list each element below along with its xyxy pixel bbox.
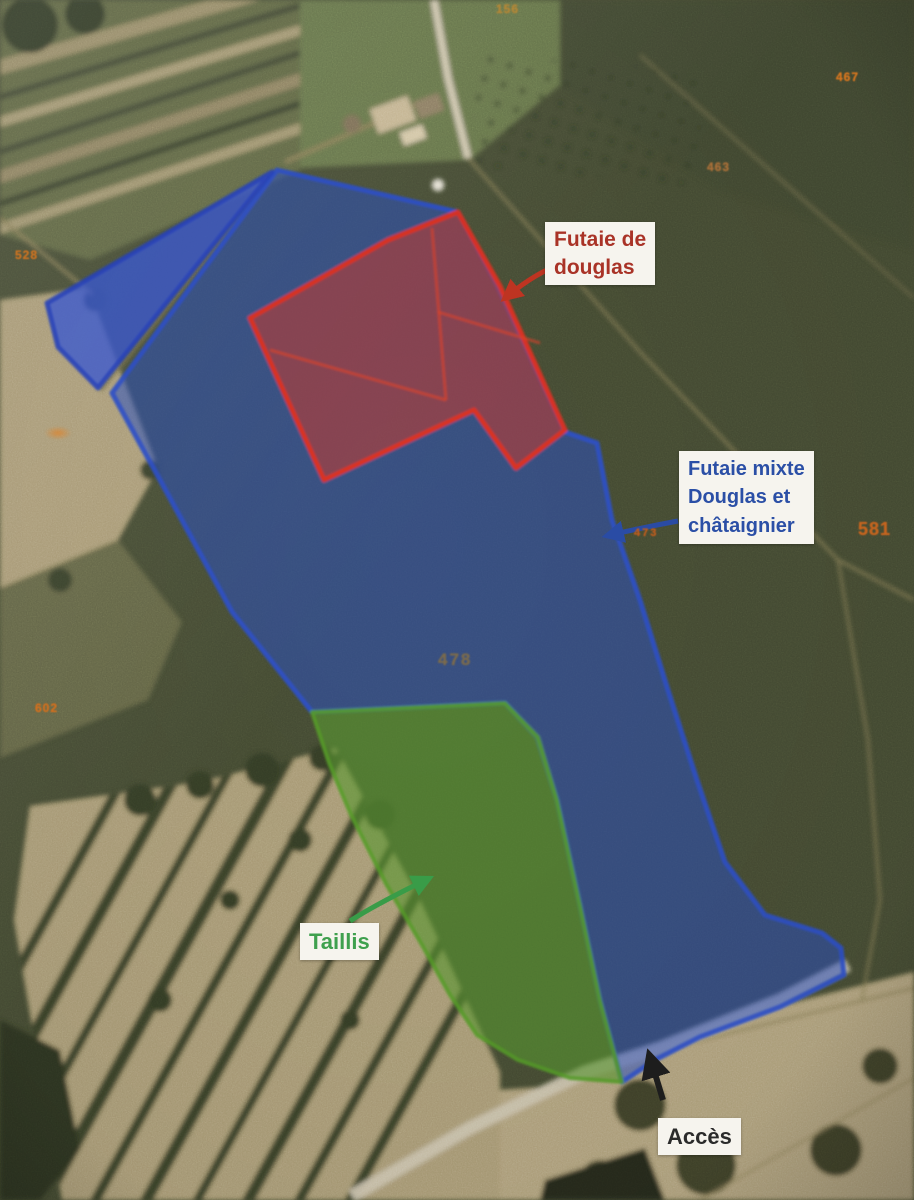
vignette (0, 0, 914, 1200)
label-line: Futaie de (554, 226, 646, 254)
label-futaie-mixte: Futaie mixte Douglas et châtaignier (679, 451, 814, 544)
label-line: Taillis (309, 927, 370, 956)
illegible-parcel-number (44, 426, 72, 440)
label-line: Douglas et (688, 483, 805, 511)
parcel-number: 473 (634, 527, 658, 539)
parcel-number: 478 (438, 650, 472, 670)
label-taillis: Taillis (300, 923, 379, 960)
label-line: douglas (554, 254, 646, 282)
label-line: Accès (667, 1122, 732, 1151)
basemap-svg (0, 0, 914, 1200)
parcel-number: 602 (35, 701, 58, 715)
label-line: châtaignier (688, 512, 805, 540)
parcel-number: 528 (15, 248, 38, 262)
parcel-number: 156 (496, 2, 519, 16)
aerial-forest-map: Futaie de douglas Futaie mixte Douglas e… (0, 0, 914, 1200)
label-futaie-de-douglas: Futaie de douglas (545, 222, 655, 285)
label-line: Futaie mixte (688, 455, 805, 483)
parcel-number: 467 (836, 70, 859, 84)
parcel-number: 581 (858, 519, 891, 540)
label-acces: Accès (658, 1118, 741, 1155)
parcel-number: 463 (707, 160, 730, 174)
